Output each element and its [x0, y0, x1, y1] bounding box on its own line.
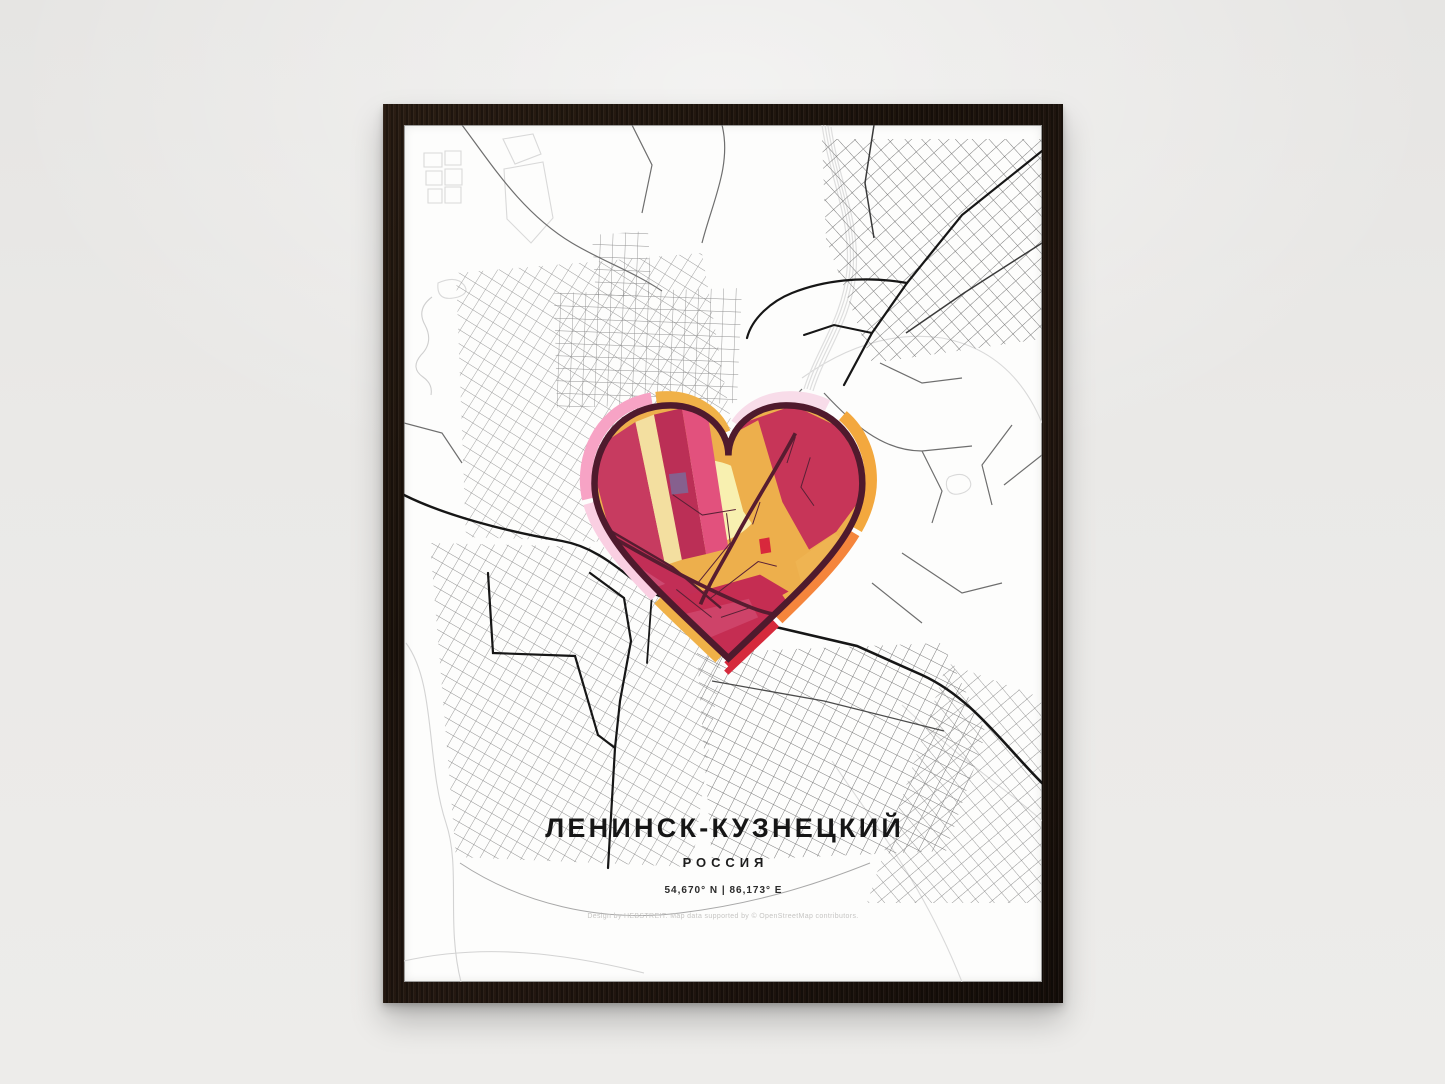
city-map-artwork: [404, 125, 1042, 982]
photo-of-framed-poster: { "poster": { "title": "ЛЕНИНСК-КУЗНЕЦКИ…: [0, 0, 1445, 1084]
map-poster: ЛЕНИНСК-КУЗНЕЦКИЙ РОССИЯ 54,670° N | 86,…: [404, 125, 1042, 982]
mosaic-red-accent: [759, 537, 771, 554]
picture-frame: ЛЕНИНСК-КУЗНЕЦКИЙ РОССИЯ 54,670° N | 86,…: [383, 104, 1063, 1003]
mosaic-purple-block: [669, 472, 689, 494]
